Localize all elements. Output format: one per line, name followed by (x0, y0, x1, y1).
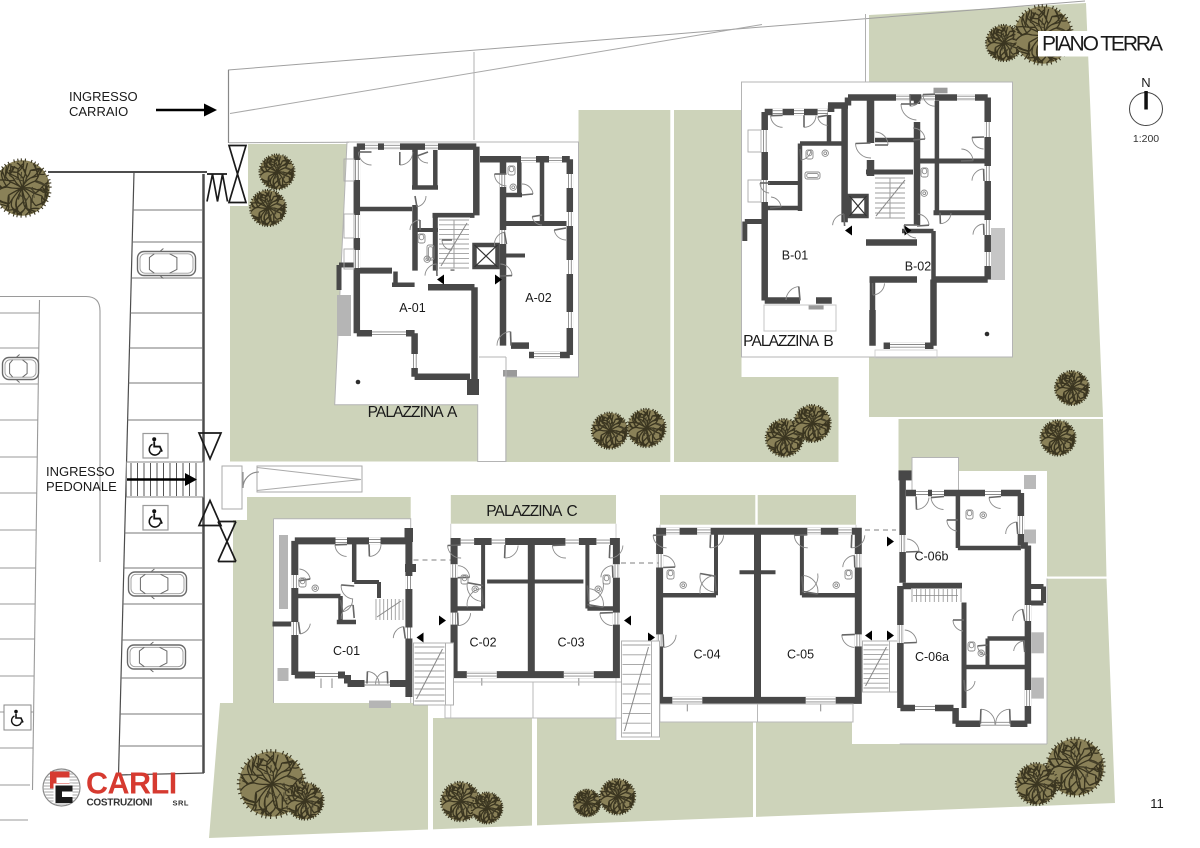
svg-text:CARLI: CARLI (86, 767, 177, 801)
svg-text:CARRAIO: CARRAIO (69, 104, 128, 119)
svg-text:C-06a: C-06a (915, 650, 949, 664)
svg-text:PIANO TERRA: PIANO TERRA (1042, 33, 1163, 56)
svg-text:C-05: C-05 (787, 648, 814, 662)
svg-text:B-02: B-02 (905, 260, 931, 274)
svg-text:N: N (1141, 75, 1150, 90)
svg-text:B-01: B-01 (782, 249, 808, 263)
svg-text:1:200: 1:200 (1133, 133, 1159, 145)
svg-text:A-01: A-01 (399, 301, 425, 315)
svg-text:C-06b: C-06b (914, 550, 948, 564)
svg-text:INGRESSO: INGRESSO (46, 464, 115, 479)
svg-text:COSTRUZIONI: COSTRUZIONI (87, 798, 153, 809)
svg-text:11: 11 (1150, 796, 1164, 811)
svg-text:PALAZZINA B: PALAZZINA B (743, 333, 833, 350)
svg-text:C-04: C-04 (693, 648, 720, 662)
svg-text:A-02: A-02 (525, 291, 551, 305)
svg-text:PEDONALE: PEDONALE (46, 479, 117, 494)
svg-text:C-03: C-03 (557, 636, 584, 650)
svg-text:INGRESSO: INGRESSO (69, 89, 138, 104)
svg-text:C-02: C-02 (469, 636, 496, 650)
svg-text:C-01: C-01 (333, 644, 360, 658)
svg-text:PALAZZINA C: PALAZZINA C (486, 503, 577, 520)
svg-text:SRL: SRL (173, 799, 190, 808)
svg-text:PALAZZINA A: PALAZZINA A (368, 404, 458, 421)
